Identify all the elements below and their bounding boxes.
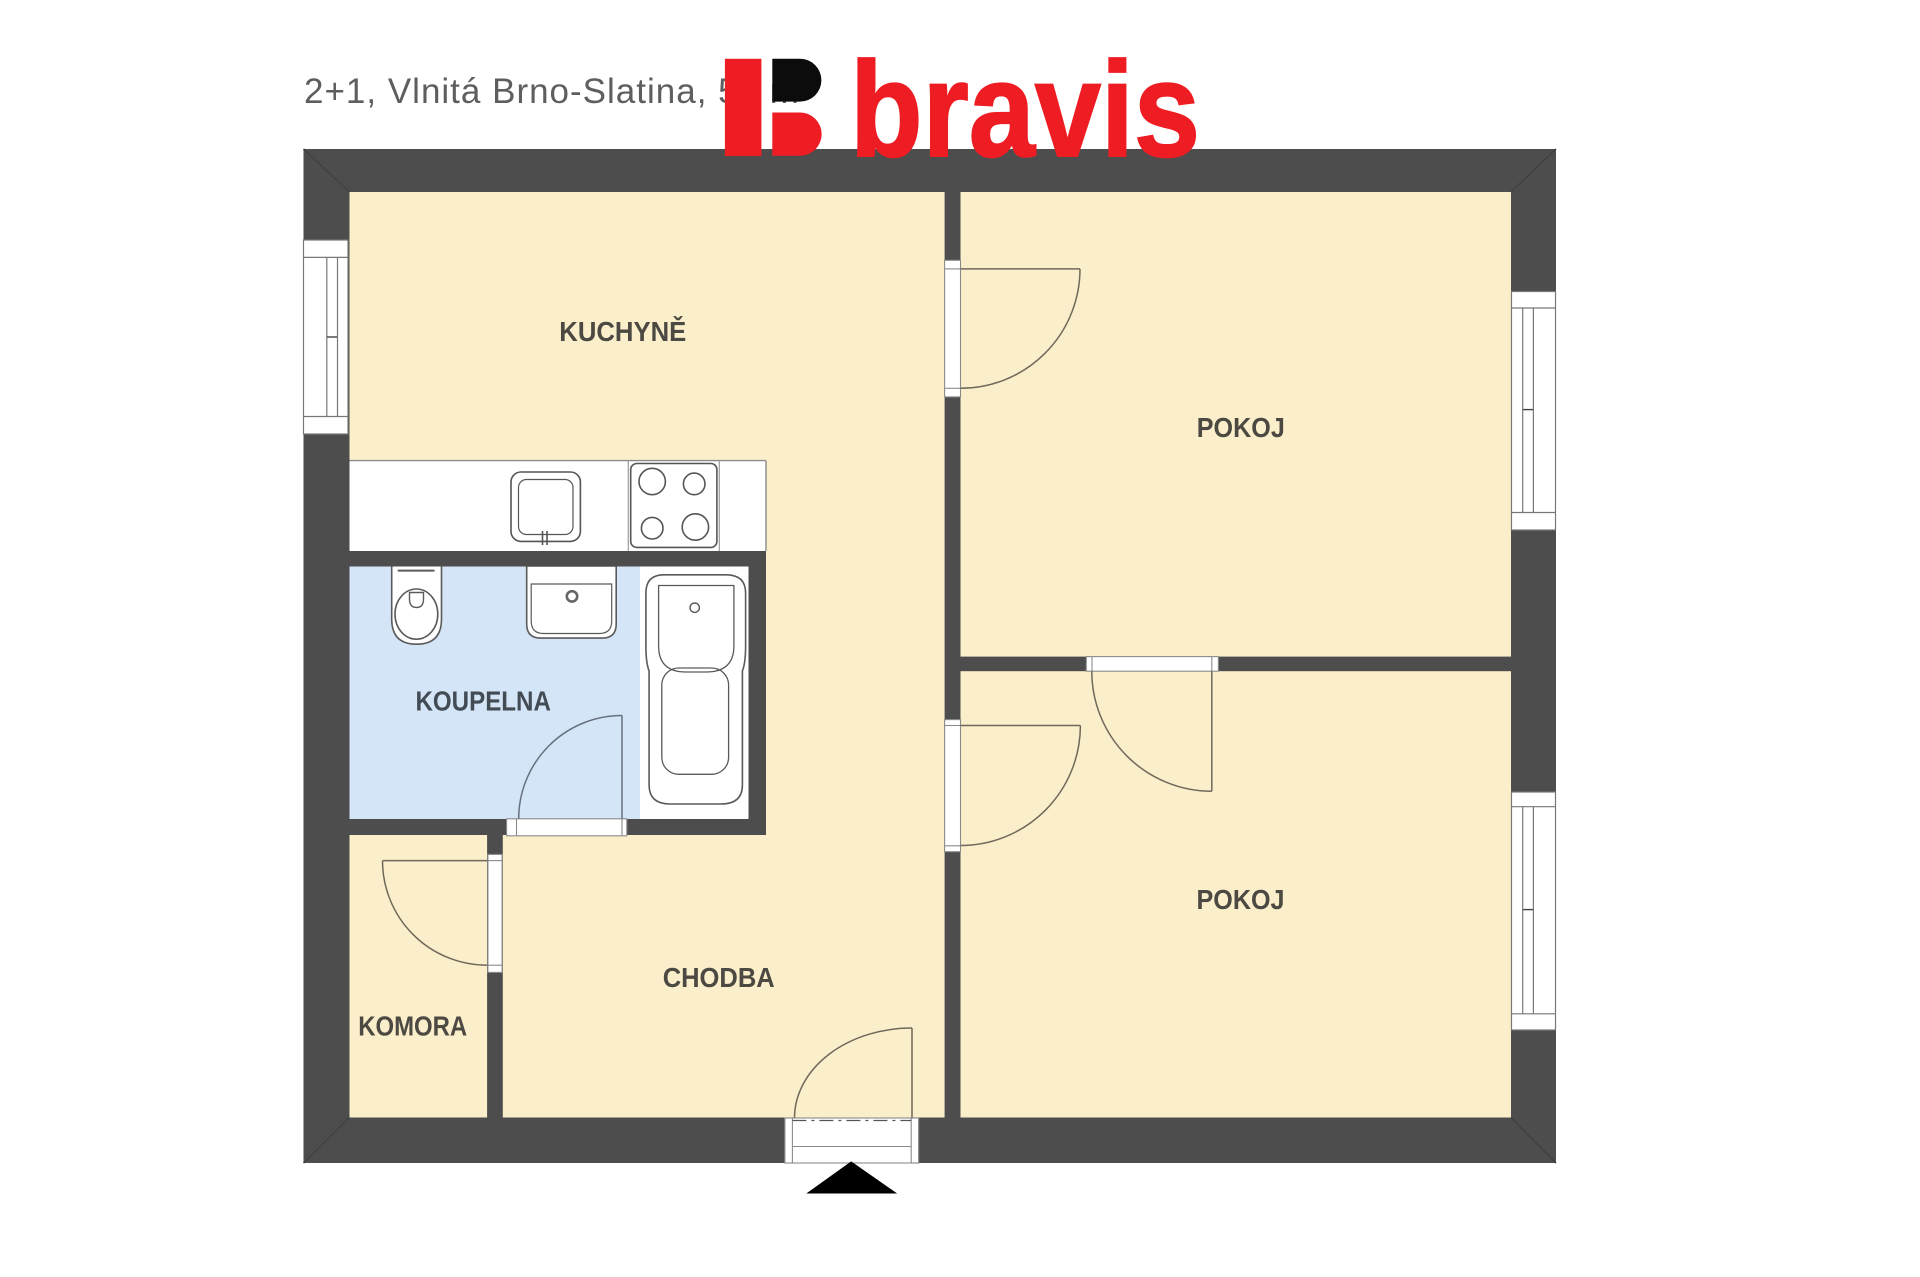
svg-text:KOMORA: KOMORA (358, 1011, 467, 1042)
svg-text:POKOJ: POKOJ (1197, 412, 1285, 443)
svg-text:bravis: bravis (850, 34, 1200, 185)
svg-text:POKOJ: POKOJ (1197, 884, 1285, 915)
svg-text:CHODBA: CHODBA (663, 962, 775, 993)
svg-text:KUCHYNĚ: KUCHYNĚ (559, 316, 686, 347)
svg-text:KOUPELNA: KOUPELNA (415, 686, 551, 717)
